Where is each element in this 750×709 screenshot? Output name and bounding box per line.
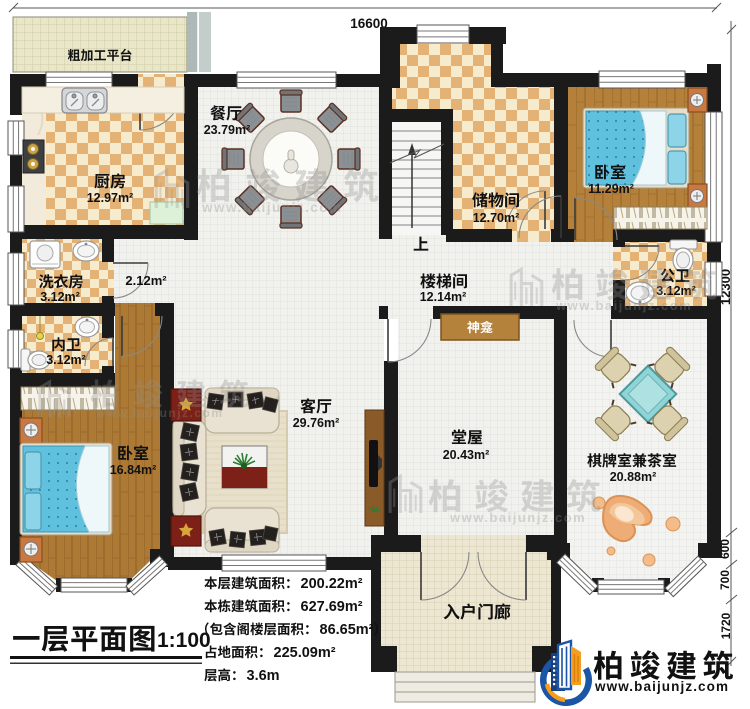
svg-text:3.6m: 3.6m: [247, 668, 280, 684]
svg-text:627.69m²: 627.69m²: [301, 599, 363, 615]
svg-text:86.65m²: 86.65m²: [320, 622, 374, 638]
svg-text:www.baijunjz.com: www.baijunjz.com: [95, 406, 224, 420]
svg-text:1720: 1720: [719, 612, 733, 639]
svg-text:12.14m²: 12.14m²: [420, 290, 467, 304]
svg-text:29.76m²: 29.76m²: [293, 416, 340, 430]
svg-text:1:100: 1:100: [157, 629, 211, 652]
svg-text:23.79m²: 23.79m²: [204, 123, 251, 137]
svg-text:www.baijunjz.com: www.baijunjz.com: [594, 679, 729, 694]
svg-text:225.09m²: 225.09m²: [274, 645, 336, 661]
svg-text:200.22m²: 200.22m²: [301, 576, 363, 592]
svg-text:www.baijunjz.com: www.baijunjz.com: [555, 298, 692, 313]
svg-text:3.12m²: 3.12m²: [46, 353, 86, 367]
svg-text:2.12m²: 2.12m²: [125, 273, 167, 288]
svg-text:www.baijunjz.com: www.baijunjz.com: [449, 510, 586, 525]
svg-text:3.12m²: 3.12m²: [40, 290, 80, 304]
svg-text:12.70m²: 12.70m²: [473, 211, 520, 225]
svg-text:www.baijunjz.com: www.baijunjz.com: [201, 200, 343, 215]
svg-text:12.97m²: 12.97m²: [87, 191, 134, 205]
svg-text:11.29m²: 11.29m²: [588, 182, 634, 196]
svg-text:16.84m²: 16.84m²: [110, 463, 157, 477]
svg-text:20.88m²: 20.88m²: [610, 470, 657, 484]
svg-text:20.43m²: 20.43m²: [443, 448, 490, 462]
svg-text:700: 700: [718, 570, 732, 590]
